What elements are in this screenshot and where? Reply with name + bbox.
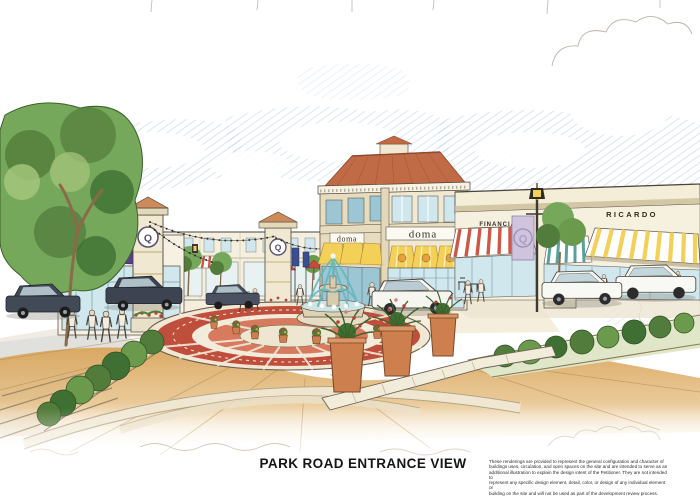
- q-logo-letter: Q: [144, 233, 152, 245]
- cloud-outline: [552, 16, 692, 66]
- rendering-page: Q Q: [0, 0, 700, 503]
- disclaimer-line: represent any specific design element, d…: [489, 480, 669, 491]
- ricardo-sign-text: RICARDO: [606, 210, 658, 219]
- cloud: [570, 84, 670, 136]
- disclaimer-line: additional illustration to explain the d…: [489, 470, 669, 481]
- q-logo-letter: Q: [519, 234, 528, 246]
- cloud: [475, 132, 585, 168]
- doma-sign-right: doma: [386, 227, 460, 241]
- disclaimer-line: building on the site and will not be use…: [489, 491, 669, 496]
- q-logo-letter: Q: [275, 243, 282, 253]
- page-title: PARK ROAD ENTRANCE VIEW: [230, 456, 496, 471]
- awning-logo-icon: [422, 254, 430, 262]
- doma-sign-text: doma: [337, 235, 357, 244]
- awning-logo-icon: [398, 254, 406, 262]
- doma-sign-left: doma: [330, 233, 364, 244]
- pylon-cap: [259, 212, 297, 222]
- cloud: [210, 151, 290, 179]
- illustration-svg: Q Q: [0, 0, 700, 503]
- pen-ticks: [151, 0, 660, 14]
- doma-sign-text: doma: [409, 229, 437, 241]
- disclaimer-text: These renderings are provided to represe…: [489, 459, 669, 496]
- disclaimer-line: buildings uses, circulation, and open sp…: [489, 464, 669, 469]
- q-pylon-right: Q: [259, 212, 297, 312]
- q-banner: Q: [512, 216, 534, 260]
